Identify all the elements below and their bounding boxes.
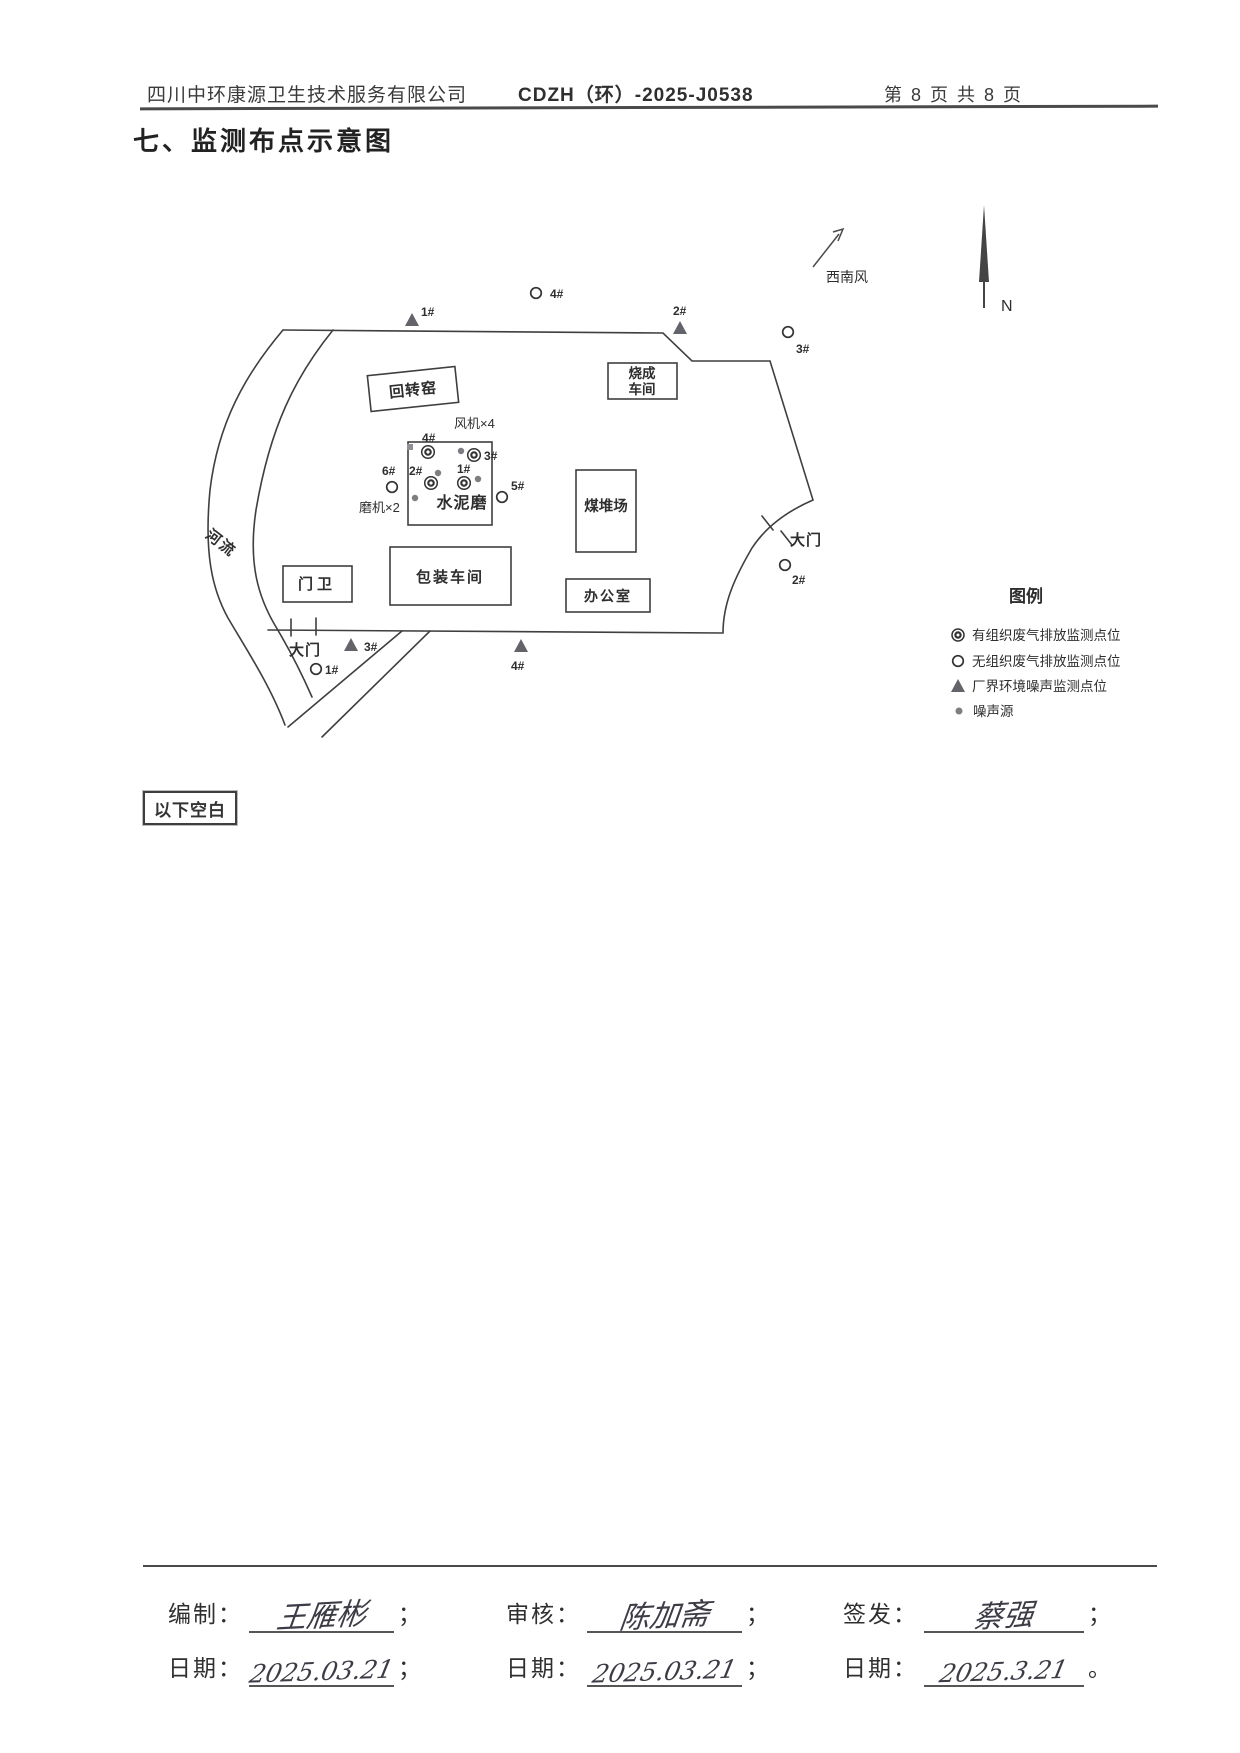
legend-organized-label: 有组织废气排放监测点位 (972, 628, 1121, 643)
reviewed-signature-line: 陈加斋 (587, 1591, 742, 1633)
header-page-info: 第 8 页 共 8 页 (884, 81, 1023, 107)
building-packing-workshop: 包装车间 (390, 547, 511, 605)
issued-label: 签发： (843, 1595, 918, 1633)
blank-below-note: 以下空白 (143, 791, 237, 825)
issued-signature: 蔡强 (971, 1589, 1036, 1636)
prepared-label: 编制： (168, 1595, 243, 1633)
gate-left-label: 大门 (289, 641, 321, 659)
issued-date-punct: 。 (1088, 1649, 1111, 1687)
legend: 图例 有组织废气排放监测点位 无组织废气排放监测点位 厂界环境噪声监测点位 噪声… (951, 586, 1121, 719)
reviewed-date-line: 2025.03.21 (587, 1657, 742, 1687)
noise-source-dot (475, 476, 481, 482)
building-office-label: 办公室 (584, 588, 632, 604)
issued-punct: ； (1088, 1595, 1111, 1633)
fans-annotation: 风机×4 (454, 416, 495, 431)
prepared-date-line: 2025.03.21 (249, 1657, 394, 1687)
building-coal-yard-label: 煤堆场 (584, 497, 628, 515)
noise-source-dot (412, 495, 418, 501)
river-outer-bank (208, 330, 285, 725)
unorganized-outer-point-3 (783, 327, 794, 338)
issued-date-line: 2025.3.21 (924, 1657, 1084, 1687)
north-arrow-icon (979, 205, 989, 308)
footer-prepared-block: 编制： 王雁彬 ； 日期： 2025.03.21 ； (168, 1583, 498, 1691)
reviewed-label: 审核： (506, 1595, 581, 1633)
building-firing-workshop: 烧成 车间 (608, 363, 677, 399)
gate-right-label: 大门 (790, 531, 822, 549)
north-label: N (1001, 298, 1013, 315)
reviewed-signature: 陈加斋 (617, 1588, 712, 1637)
prepared-date-label: 日期： (168, 1649, 243, 1687)
legend-organized-icon (952, 629, 964, 641)
building-cement-mill-label: 水泥磨 (436, 493, 487, 512)
building-gate-house-label: 门卫 (298, 575, 336, 593)
header-company-name: 四川中环康源卫生技术服务有限公司 (147, 80, 467, 107)
building-office: 办公室 (566, 579, 650, 612)
unorganized-outer-point-2 (780, 560, 791, 571)
gate-left-ticks (291, 618, 316, 636)
reviewed-date: 2025.03.21 (590, 1654, 739, 1688)
building-cement-mill: 水泥磨 (408, 442, 492, 525)
unorganized-point-6-label: 6# (382, 464, 396, 478)
monitoring-layout-diagram: 回转窑 烧成 车间 水泥磨 煤堆场 门卫 包装车间 办公室 风机×4 (130, 165, 1140, 750)
prepared-punct: ； (398, 1595, 421, 1633)
section-title: 七、监测布点示意图 (133, 121, 394, 158)
report-page: { "header": { "company": "四川中环康源卫生技术服务有限… (0, 0, 1240, 1753)
organized-point-2-label: 2# (409, 464, 423, 478)
noise-point-2 (673, 321, 687, 334)
unorganized-point-5-label: 5# (511, 479, 525, 493)
unorganized-outer-point-4 (531, 288, 542, 299)
organized-point-1-label: 1# (457, 462, 471, 476)
building-firing-workshop-label2: 车间 (629, 381, 656, 397)
legend-noise-source-label: 噪声源 (973, 704, 1014, 719)
building-rotary-kiln: 回转窑 (367, 366, 458, 411)
unorganized-outer-point-1-label: 1# (325, 663, 339, 677)
noise-point-4-label: 4# (511, 659, 525, 673)
wind-label: 西南风 (826, 269, 868, 285)
unorganized-outer-point-3-label: 3# (796, 342, 810, 356)
building-coal-yard: 煤堆场 (576, 470, 636, 552)
prepared-date: 2025.03.21 (247, 1654, 396, 1688)
noise-point-3 (344, 638, 358, 651)
reviewed-date-punct: ； (746, 1649, 769, 1687)
legend-noise-point-label: 厂界环境噪声监测点位 (972, 679, 1107, 694)
prepared-signature-line: 王雁彬 (249, 1591, 394, 1633)
legend-noise-point-icon (951, 679, 965, 692)
footer-reviewed-block: 审核： 陈加斋 ； 日期： 2025.03.21 ； (506, 1583, 836, 1691)
legend-unorganized-label: 无组织废气排放监测点位 (972, 654, 1121, 669)
noise-point-3-label: 3# (364, 640, 378, 654)
legend-title: 图例 (1009, 586, 1043, 606)
issued-signature-line: 蔡强 (924, 1591, 1084, 1633)
noise-source-dot (435, 470, 441, 476)
noise-point-1 (405, 313, 419, 326)
noise-point-2-label: 2# (673, 304, 687, 318)
corner-marker (407, 444, 413, 450)
footer-divider (143, 1565, 1157, 1567)
unorganized-outer-point-4-label: 4# (550, 287, 564, 301)
prepared-signature: 王雁彬 (274, 1588, 369, 1637)
legend-unorganized-icon (953, 656, 964, 667)
unorganized-outer-point-2-label: 2# (792, 573, 806, 587)
footer-issued-block: 签发： 蔡强 ； 日期： 2025.3.21 。 (843, 1583, 1173, 1691)
noise-source-dot (458, 448, 464, 454)
building-firing-workshop-label1: 烧成 (629, 365, 657, 381)
header-doc-number: CDZH（环）-2025-J0538 (518, 80, 754, 107)
building-gate-house: 门卫 (283, 566, 352, 602)
unorganized-point-6 (387, 482, 398, 493)
prepared-date-punct: ； (398, 1649, 421, 1687)
noise-point-4 (514, 639, 528, 652)
issued-date-label: 日期： (843, 1649, 918, 1687)
reviewed-date-label: 日期： (506, 1649, 581, 1687)
mills-annotation: 磨机×2 (359, 500, 400, 515)
noise-point-1-label: 1# (421, 305, 435, 319)
unorganized-outer-point-1 (311, 664, 322, 675)
organized-point-3-label: 3# (484, 449, 498, 463)
wind-arrow (813, 229, 843, 267)
unorganized-point-5 (497, 492, 508, 503)
building-packing-workshop-label: 包装车间 (416, 568, 484, 586)
organized-point-4-label: 4# (422, 431, 436, 445)
legend-noise-source-icon (956, 708, 963, 715)
reviewed-punct: ； (746, 1595, 769, 1633)
issued-date: 2025.3.21 (937, 1655, 1070, 1689)
